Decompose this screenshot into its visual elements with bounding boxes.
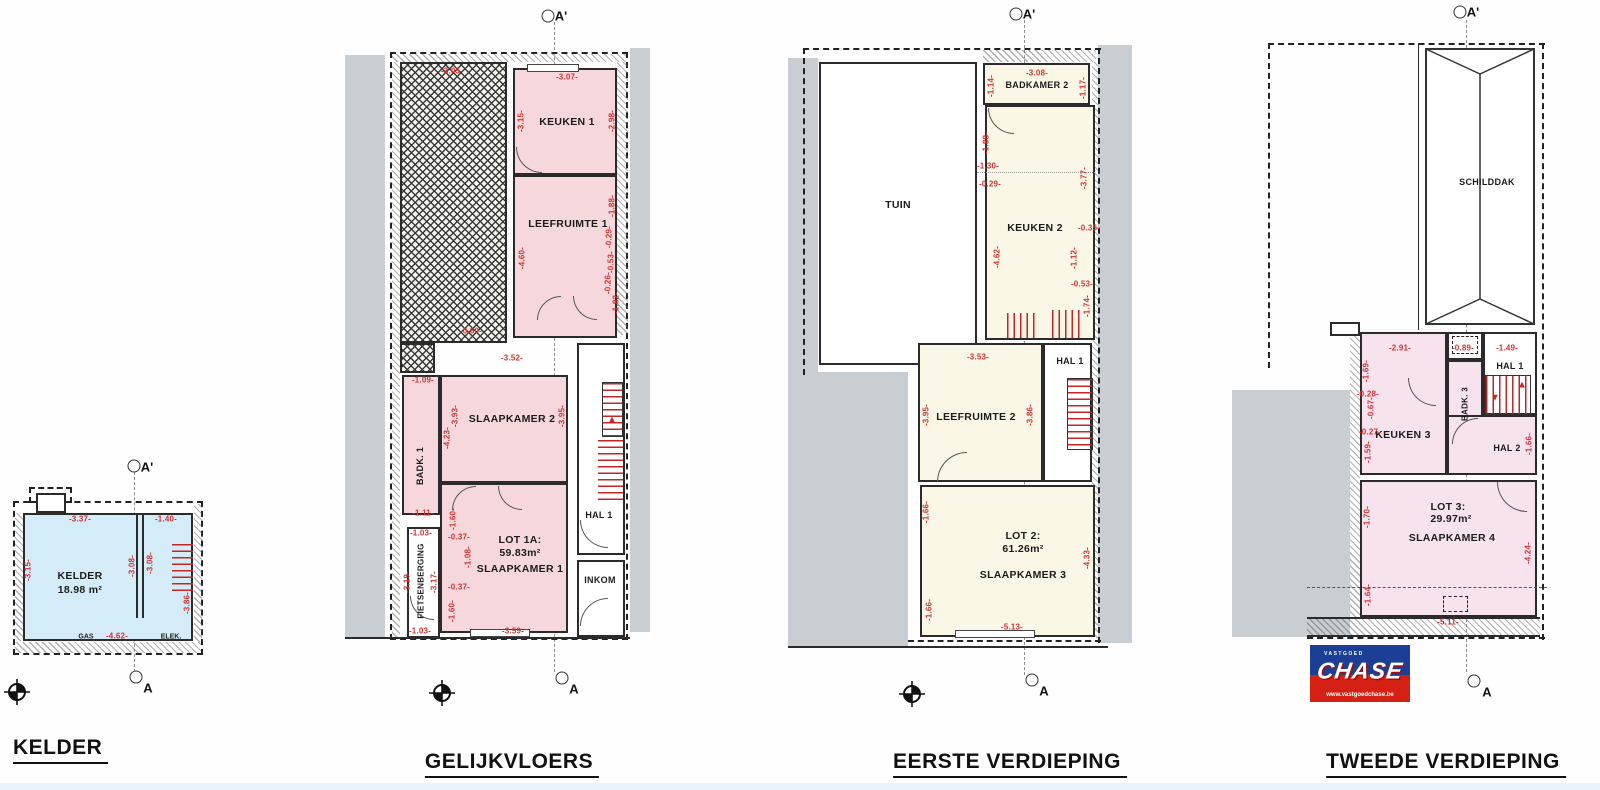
room-label: HAL 1 [1056,356,1083,366]
wall-hatch [983,50,1096,62]
section-marker-label: A' [1467,5,1479,20]
courtyard-hatch [400,62,507,343]
dim-label: -1.64- [1364,584,1373,606]
dim-label: -0.35- [1078,224,1100,233]
room-slaapkamer3 [920,485,1095,637]
dim-label: -0.53- [607,251,616,273]
plot-boundary [1268,43,1270,368]
dim-label: -3.08- [128,555,137,577]
stairs-arrow-icon: ▼ [1490,393,1500,404]
floor-title-tweede-verdieping: TWEEDE VERDIEPING [1326,750,1566,778]
room-label: INKOM [584,575,616,585]
section-marker-label: A [1482,685,1491,700]
room-label: LEEFRUIMTE 2 [936,411,1015,423]
dim-label: -4.23- [443,427,452,449]
floor-title-gelijkvloers: GELIJKVLOERS [425,750,599,778]
section-marker-circle [1010,8,1023,21]
dim-label: -3.19- [403,571,412,593]
dim-label: -3.17- [430,571,439,593]
room-leefruimte1 [513,175,617,338]
wall-hatch [392,62,400,638]
dim-label: -1.12- [1070,247,1079,269]
plot-boundary [908,640,1101,642]
dim-label: -3.05- [441,67,463,76]
section-marker-label: A' [555,9,567,24]
room-label: SCHILDDAK [1459,177,1515,187]
dim-label: -1.66- [922,501,931,523]
dim-label: -4.33- [1083,547,1092,569]
wall-hatch [392,54,626,62]
dim-label: -1.69- [1362,360,1371,382]
neighbour-mass [788,372,908,647]
dim-label: -0.26- [604,272,613,294]
section-marker-label: A [569,682,578,697]
dim-label: -1.14- [987,75,996,97]
stairs [172,544,193,593]
dim-label: -3.95- [922,404,931,426]
stairs [1052,310,1080,338]
wall-hatch [1350,332,1360,617]
dim-label: -1.70- [1363,506,1372,528]
dim-label: -1.40- [155,515,177,524]
dim-label: -0.67- [1367,397,1376,419]
dim-label: -1.17- [1079,77,1088,99]
dim-label: -0.29- [605,226,614,248]
section-marker-label: A' [1023,7,1035,22]
bottom-wall-hatch [1307,617,1540,637]
logo-tagline: VASTGOED [1324,651,1364,657]
room-label: FIETSENBERGING [417,543,426,618]
courtyard-hatch [400,343,435,373]
dim-label: -3.86- [183,592,192,614]
dim-label: -5.13- [1001,623,1023,632]
inner-wall [136,515,144,618]
dim-label: -3.15- [517,110,526,132]
dim-label: -4.62- [993,246,1002,268]
dim-label: -0.89- [1452,344,1474,353]
section-marker-label: A [1039,684,1048,699]
dim-label: -1.03- [410,529,432,538]
section-marker-circle [1454,6,1467,19]
room-label: HAL 1 [585,510,612,520]
room-label: HAL 1 [1496,361,1523,371]
chimney [36,493,66,513]
plot-boundary [1542,43,1544,640]
floor-title-eerste-verdieping: EERSTE VERDIEPING [893,750,1127,778]
room-slaapkamer2 [440,375,568,483]
dim-label: -1.30- [977,162,999,171]
dim-label: -4.24- [1524,542,1533,564]
north-compass-icon [429,680,455,706]
plot-boundary [803,48,805,375]
wall-hatch [194,504,202,642]
dim-label: -3.37- [69,515,91,524]
room-label: KEUKEN 2 [1007,222,1063,234]
dim-label: -3.77- [1080,167,1089,189]
dim-label: -4.60- [518,247,527,269]
dim-label: -3.93- [451,405,460,427]
gas-label: GAS [78,634,93,641]
chase-logo: VASTGOED CHASE www.vastgoedchase.be [1310,645,1410,702]
lot-area: 29.97m² [1430,513,1471,525]
neighbour-mass [345,55,385,638]
room-label: SLAAPKAMER 1 [477,563,563,575]
section-marker-circle [1026,674,1039,687]
dim-label: -1.59- [1364,441,1373,463]
wall-hatch [15,642,201,653]
room-label: BADKAMER 2 [1005,80,1068,90]
lot-label: LOT 2: [1005,530,1040,542]
dim-label: -3.52- [501,354,523,363]
dim-label: -1.49- [1496,344,1518,353]
dim-label: -5.11- [1437,618,1459,627]
dim-label: -1.08- [464,546,473,568]
dim-label: -1.88- [608,195,617,217]
lot-area: 61.26m² [1002,543,1043,555]
floorplan-sheet: KELDER 18.98 m² GAS ELEK. -3.37- -1.40- … [0,0,1600,790]
floor-title-kelder: KELDER [13,736,108,764]
dim-label: -1.66- [925,599,934,621]
dim-label: -4.62- [106,632,128,641]
neighbour-mass [1098,45,1132,643]
dim-label: -2.98- [608,110,617,132]
room-label: KEUKEN 1 [539,116,595,128]
dim-label: -3.86- [1026,404,1035,426]
north-compass-icon [899,681,925,707]
dim-label: -3.59- [502,627,524,636]
dim-label: -3.08- [146,552,155,574]
facade-line [345,637,630,639]
page-bottom-strip [0,783,1600,790]
room-tuin [819,62,977,365]
lot-label: LOT 1A: [499,534,542,546]
dim-label: -3.07- [556,73,578,82]
room-label: SLAAPKAMER 3 [980,569,1066,581]
dim-label: -1.82- [612,292,621,314]
plot-boundary [1098,48,1100,643]
stairs [1067,378,1093,450]
lot-label: LOT 3: [1430,501,1465,513]
room-badkamer1 [402,375,440,515]
stairs [1007,313,1037,338]
dim-label: -3.15- [24,559,33,581]
plot-boundary [1268,43,1545,45]
guide-line [1307,587,1547,588]
room-label: TUIN [885,199,911,211]
stairs [598,440,623,505]
dim-label: -3.95- [558,405,567,427]
stairs [602,382,623,437]
elek-label: ELEK. [161,634,182,641]
room-area: 18.98 m² [58,584,102,596]
party-wall-line [1418,43,1419,330]
section-marker-label: A [143,681,152,696]
dim-label: -1.74- [1083,295,1092,317]
dim-label: -3.53- [967,353,989,362]
section-marker-circle [556,672,569,685]
room-label: LEEFRUIMTE 1 [528,218,607,230]
room-label: KEUKEN 3 [1375,429,1431,441]
dim-label: -1.88- [982,132,991,154]
room-label: SLAAPKAMER 4 [1409,532,1495,544]
room-label: BADK. 1 [415,447,425,485]
dim-label: -1.60- [449,508,458,530]
room-label: HAL 2 [1493,443,1520,453]
room-label: KELDER [58,570,103,582]
dim-label: -1.66- [1525,433,1534,455]
north-compass-icon [4,679,30,705]
section-marker-circle [128,460,141,473]
room-label: SLAAPKAMER 2 [469,413,555,425]
fixture-dashed [1443,596,1468,612]
stairs-arrow-icon: ▲ [1517,380,1527,391]
dim-label: -0.29- [979,180,1001,189]
neighbour-mass [630,48,650,632]
dim-label: -1.60- [448,600,457,622]
dim-label: -0.37- [448,533,470,542]
dim-label: -1.11- [412,509,434,518]
logo-brand: CHASE [1315,658,1404,685]
dim-label: -1.03- [409,627,431,636]
room-label: BADK. 3 [1461,387,1470,421]
guide-line [977,172,1095,173]
room-kelder [23,513,193,641]
section-marker-circle [1468,675,1481,688]
section-marker-label: A' [141,460,153,475]
section-marker-circle [130,671,143,684]
dim-label: -3.08- [1026,69,1048,78]
dim-label: -0.37- [448,583,470,592]
dim-label: -1.09- [412,376,434,385]
dim-label: -0.27- [1359,428,1381,437]
section-marker-circle [542,10,555,23]
facade-line [788,646,1108,648]
dim-label: -0.53- [1071,280,1093,289]
plot-boundary [1307,637,1545,639]
dim-label: -2.91- [1389,344,1411,353]
lot-area: 59.83m² [499,547,540,559]
chimney [1330,322,1360,336]
logo-url: www.vastgoedchase.be [1326,692,1393,698]
neighbour-mass [1232,390,1350,637]
stairs-arrow-icon: ▲ [607,415,617,426]
window [527,64,579,72]
dim-label: -0.60- [460,327,482,336]
